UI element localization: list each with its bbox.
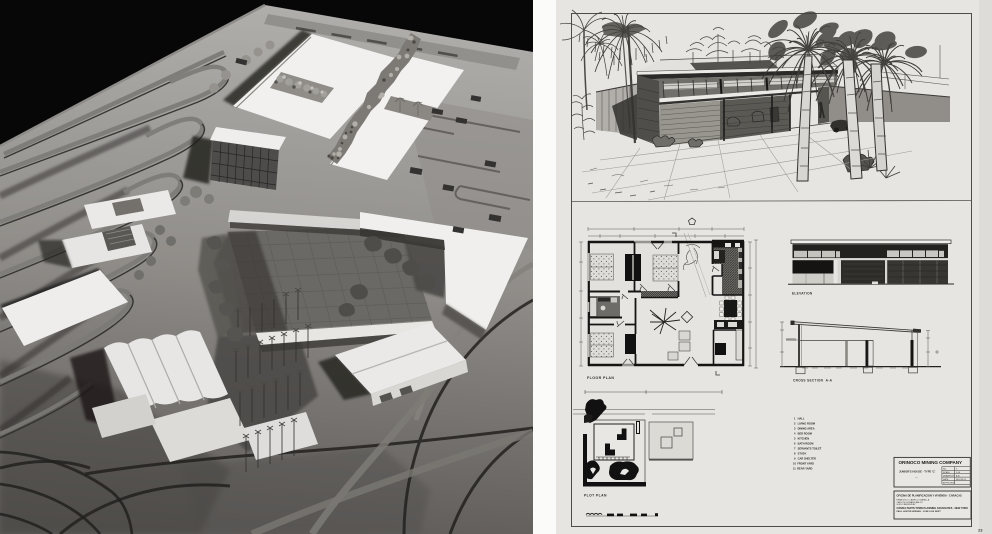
svg-text:3 DINING AREA: 3 DINING AREA [794,426,815,430]
svg-text:23: 23 [978,528,983,533]
svg-text:1 HALL: 1 HALL [794,416,805,420]
svg-text:JUNIOR'S HOUSE - TYPE 'C': JUNIOR'S HOUSE - TYPE 'C' [899,470,936,474]
svg-text:6 BATH ROOM: 6 BATH ROOM [794,441,813,445]
svg-text:11 REAR YARD: 11 REAR YARD [793,466,812,470]
svg-text:8 STUDY: 8 STUDY [794,451,807,455]
svg-text:CROSS SECTION A-A: CROSS SECTION A-A [793,379,833,383]
svg-text:2 LIVING ROOM: 2 LIVING ROOM [794,421,815,425]
svg-text:7 SERVANTS TOILET: 7 SERVANTS TOILET [794,446,822,450]
svg-text:NO.: NO. [943,469,947,471]
svg-text:SCALE: SCALE [943,471,950,474]
svg-text:OFICINA DE PLANIFICACION Y VIV: OFICINA DE PLANIFICACION Y VIVIENDA - CA… [897,493,963,497]
svg-text:4 BED ROOM: 4 BED ROOM [794,431,812,435]
svg-text:PLOT PLAN: PLOT PLAN [584,493,607,497]
svg-text:DRAWN BY: DRAWN BY [943,475,955,478]
svg-text:5 KITCHEN: 5 KITCHEN [794,436,809,440]
svg-text:A.B.: A.B. [956,475,960,478]
svg-text:ELEVATION: ELEVATION [792,292,813,296]
svg-text:ORINOCO MINING COMPANY: ORINOCO MINING COMPANY [899,460,964,465]
svg-text:FLOOR PLAN: FLOOR PLAN [587,376,614,380]
svg-text:9 CAR SHELTER: 9 CAR SHELTER [794,456,816,460]
svg-text:—: — [915,477,918,480]
svg-text:10 FRONT YARD: 10 FRONT YARD [793,461,814,465]
svg-text:PAUL LESTER WIENER - JOSE LUIS: PAUL LESTER WIENER - JOSE LUIS SERT [897,510,942,513]
svg-text:APPROVED: APPROVED [943,482,955,485]
svg-text:DATE: DATE [943,478,949,481]
svg-text:CONSULTANTS:TOWN PLANNING ASSO: CONSULTANTS:TOWN PLANNING ASSOCIATES - N… [897,507,969,510]
svg-text:NOV.30.51: NOV.30.51 [956,479,967,481]
svg-text:GUIDO BERMUDEZ: GUIDO BERMUDEZ [897,504,917,506]
